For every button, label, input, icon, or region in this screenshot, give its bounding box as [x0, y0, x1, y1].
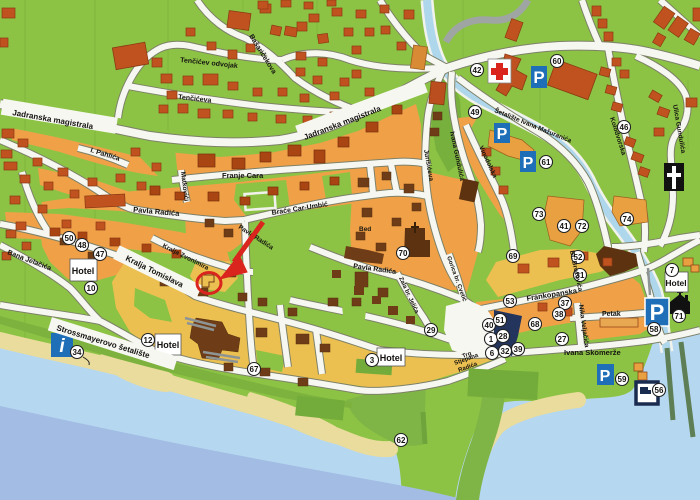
svg-text:P: P	[523, 155, 534, 172]
svg-text:69: 69	[509, 252, 518, 261]
svg-text:P: P	[497, 126, 508, 143]
svg-text:51: 51	[496, 316, 505, 325]
svg-text:3: 3	[370, 356, 375, 365]
svg-text:Hotel: Hotel	[157, 340, 180, 350]
svg-text:50: 50	[65, 234, 74, 243]
svg-text:29: 29	[427, 326, 436, 335]
svg-text:62: 62	[397, 436, 406, 445]
svg-text:27: 27	[558, 335, 567, 344]
svg-text:Hotel: Hotel	[72, 266, 95, 276]
svg-text:Ivana Skomerže: Ivana Skomerže	[564, 348, 621, 357]
svg-text:37: 37	[561, 299, 570, 308]
svg-text:72: 72	[578, 222, 587, 231]
svg-text:71: 71	[675, 312, 684, 321]
svg-text:46: 46	[620, 123, 629, 132]
svg-text:i: i	[59, 336, 65, 357]
svg-text:48: 48	[78, 241, 87, 250]
svg-text:6: 6	[490, 349, 495, 358]
svg-text:60: 60	[553, 57, 562, 66]
svg-text:56: 56	[655, 386, 664, 395]
svg-text:12: 12	[144, 336, 153, 345]
svg-text:61: 61	[542, 158, 551, 167]
svg-text:P: P	[650, 300, 665, 325]
svg-text:39: 39	[514, 345, 523, 354]
svg-text:Petak: Petak	[602, 311, 621, 318]
svg-text:34: 34	[73, 348, 82, 357]
svg-text:Hotel: Hotel	[665, 278, 686, 288]
svg-text:40: 40	[485, 321, 494, 330]
svg-text:49: 49	[471, 108, 480, 117]
svg-text:68: 68	[531, 320, 540, 329]
svg-text:58: 58	[650, 325, 659, 334]
svg-text:73: 73	[535, 210, 544, 219]
svg-text:38: 38	[555, 310, 564, 319]
svg-text:59: 59	[618, 375, 627, 384]
svg-text:47: 47	[96, 250, 105, 259]
svg-text:28: 28	[499, 332, 508, 341]
svg-text:Hotel: Hotel	[380, 353, 403, 363]
svg-text:Franje Cara: Franje Cara	[222, 171, 264, 180]
svg-text:10: 10	[87, 284, 96, 293]
svg-text:53: 53	[506, 297, 515, 306]
svg-text:74: 74	[623, 215, 632, 224]
svg-text:P: P	[533, 68, 544, 87]
svg-text:P: P	[600, 368, 611, 385]
svg-text:32: 32	[501, 347, 510, 356]
svg-text:1: 1	[489, 335, 494, 344]
svg-text:42: 42	[473, 66, 482, 75]
svg-text:Bed: Bed	[359, 226, 371, 233]
svg-text:70: 70	[399, 249, 408, 258]
svg-text:41: 41	[560, 222, 569, 231]
svg-text:7: 7	[670, 266, 675, 275]
svg-text:67: 67	[250, 365, 259, 374]
